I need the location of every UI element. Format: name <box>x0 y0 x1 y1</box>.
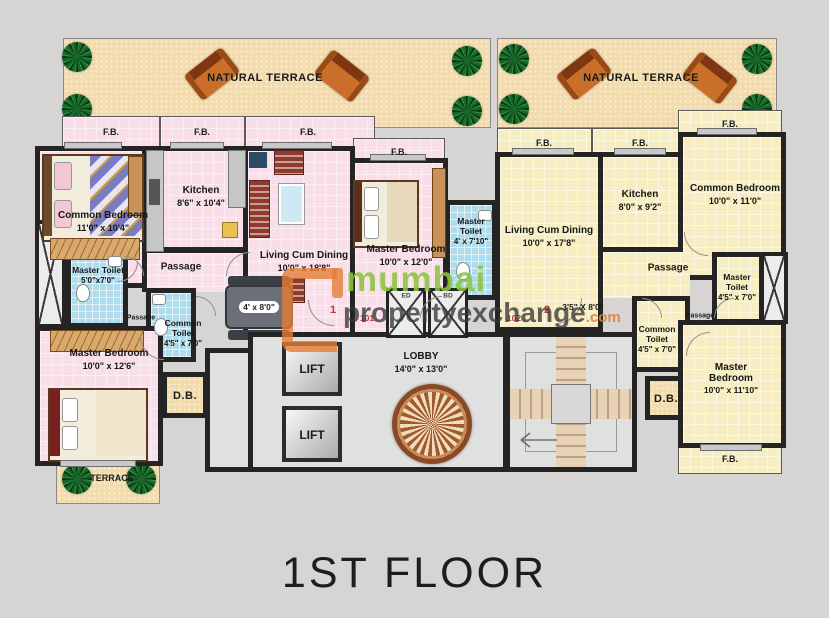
plant-icon <box>452 46 482 76</box>
window <box>614 148 666 155</box>
stair-landing <box>551 384 591 424</box>
coffee-table <box>279 184 304 224</box>
room-name: Master Bedroom <box>699 362 763 384</box>
db-101-label: D.B. <box>173 390 197 402</box>
label-living-101: Living Cum Dining 10'0" x 18'8" <box>260 250 348 274</box>
room-name: Common Toilet <box>630 324 684 344</box>
bed-pillow <box>62 426 78 450</box>
bed-pillow <box>54 162 72 190</box>
label-common-toilet-102: Common Toilet 4'5" x 7'0" <box>630 324 684 356</box>
window <box>170 142 224 149</box>
natural-terrace-left-label: NATURAL TERRACE <box>207 72 323 84</box>
room-dims: 10'0" x 17'8" <box>505 237 593 249</box>
flat-number-101: 101 <box>360 313 374 323</box>
room-dims: 4'5" x 7'0" <box>157 338 209 350</box>
label-master-bedroom-102: Master Bedroom 10'0" x 11'10" <box>699 362 763 396</box>
plant-icon <box>62 464 92 494</box>
room-name: Common Toilet <box>157 318 209 338</box>
door-arc-common-toilet-101 <box>196 296 216 316</box>
fb-label: F.B. <box>194 127 210 137</box>
room-dims: 14'0" x 13'0" <box>395 363 448 375</box>
bed-pillow <box>62 398 78 422</box>
passage-102-label: Passage <box>648 263 689 274</box>
passage-small-102-label: Passage <box>686 313 714 320</box>
duct-ed-label: ED <box>401 293 410 300</box>
tv-unit <box>249 152 267 168</box>
bed-headboard <box>50 390 60 456</box>
fb-label: F.B. <box>722 119 738 129</box>
label-master-bedroom-top-101: Master Bedroom 10'0" x 12'0" <box>367 244 446 268</box>
bed-pillow <box>364 215 379 239</box>
room-name: LOBBY <box>395 351 448 363</box>
room-name: Master Bedroom <box>70 348 149 360</box>
room-dims: 10'0" x 12'0" <box>367 256 446 268</box>
passage-dims-102: 3'5" X 8'0" <box>562 302 603 312</box>
terrace-label: TERRACE <box>90 473 134 483</box>
label-common-toilet-101: Common Toilet 4'5" x 7'0" <box>157 318 209 350</box>
window <box>512 148 574 155</box>
floorplan-canvas: 4' x 8'0" <box>0 0 829 618</box>
room-name: Kitchen <box>177 185 225 197</box>
plant-icon <box>499 94 529 124</box>
room-name: Common Bedroom <box>58 210 148 222</box>
passage-101-label: Passage <box>161 262 202 273</box>
armchair-living <box>274 150 304 175</box>
window <box>697 128 757 135</box>
bed-icon <box>48 388 148 462</box>
wardrobe-icon <box>128 156 143 216</box>
room-dims: 10'0" x 18'8" <box>260 262 348 274</box>
bed-pillow <box>364 187 379 211</box>
label-master-toilet-right-101: Master Toilet 4' x 7'10" <box>448 216 494 248</box>
duct-bd-label: BD <box>443 293 452 300</box>
room-dims: 8'0" x 9'2" <box>619 201 662 213</box>
room-name: Living Cum Dining <box>505 225 593 237</box>
room-dims: 4' x 7'10" <box>448 236 494 248</box>
kitchen-counter <box>228 150 246 208</box>
staircase <box>505 332 637 472</box>
window <box>64 142 122 149</box>
door-number-2: 2 <box>544 304 550 316</box>
label-master-bedroom-bottom-101: Master Bedroom 10'0" x 12'6" <box>70 348 149 372</box>
lobby-medallion <box>392 384 472 464</box>
room-dims: 10'0" x 11'10" <box>699 384 763 396</box>
kitchen-counter <box>146 150 164 252</box>
fb-label: F.B. <box>391 147 407 157</box>
bed-headboard <box>355 182 362 242</box>
door-number-1: 1 <box>330 304 336 316</box>
plant-icon <box>452 96 482 126</box>
stair-direction-arrow-icon <box>515 431 559 449</box>
dining-table: 4' x 8'0" <box>225 285 293 329</box>
label-master-toilet-left-101: Master Toilet 5'0"x7'0" <box>72 265 124 287</box>
lift-1-label: LIFT <box>299 362 324 376</box>
fb-label: F.B. <box>536 138 552 148</box>
plant-icon <box>742 44 772 74</box>
duct-shaft-right <box>760 252 788 324</box>
page-title: 1ST FLOOR <box>0 549 829 598</box>
natural-terrace-right-label: NATURAL TERRACE <box>583 72 699 84</box>
room-name: Master Toilet <box>72 265 124 275</box>
label-common-bedroom-101: Common Bedroom 11'0" x 10'4" <box>58 210 148 234</box>
dining-table-dims: 4' x 8'0" <box>239 301 279 313</box>
stove-icon <box>149 179 160 205</box>
lift-2-label: LIFT <box>299 428 324 442</box>
room-name: Master Toilet <box>448 216 494 236</box>
bed-icon <box>353 180 419 248</box>
label-lobby: LOBBY 14'0" x 13'0" <box>395 351 448 375</box>
room-dims: 4'5" x 7'0" <box>713 292 761 304</box>
passage-small-101-label: Passage <box>127 315 155 322</box>
room-dims: 5'0"x7'0" <box>72 275 124 287</box>
room-name: Master Bedroom <box>367 244 446 256</box>
label-common-bedroom-102: Common Bedroom 10'0" x 11'0" <box>690 183 780 207</box>
plant-icon <box>499 44 529 74</box>
room-name: Common Bedroom <box>690 183 780 195</box>
room-dims: 8'6" x 10'4" <box>177 197 225 209</box>
bed-headboard <box>44 156 52 236</box>
room-name: Master Toilet <box>713 272 761 292</box>
window <box>700 444 762 451</box>
room-dims: 11'0" x 10'4" <box>58 222 148 234</box>
passage-102 <box>603 252 690 298</box>
room-dims: 10'0" x 12'6" <box>70 360 149 372</box>
basin-icon <box>152 294 166 305</box>
window <box>60 460 136 467</box>
db-102-label: D.B. <box>654 393 678 405</box>
sofa-icon <box>249 180 270 238</box>
label-kitchen-101: Kitchen 8'6" x 10'4" <box>177 185 225 209</box>
fb-label: F.B. <box>103 127 119 137</box>
label-master-toilet-102: Master Toilet 4'5" x 7'0" <box>713 272 761 304</box>
kitchen-stool <box>222 222 238 238</box>
room-name: Living Cum Dining <box>260 250 348 262</box>
bed-blanket <box>96 390 146 456</box>
fb-label: F.B. <box>722 454 738 464</box>
window <box>262 142 332 149</box>
room-dims: 10'0" x 11'0" <box>690 195 780 207</box>
label-living-102: Living Cum Dining 10'0" x 17'8" <box>505 225 593 249</box>
room-name: Kitchen <box>619 189 662 201</box>
plant-icon <box>62 42 92 72</box>
room-dims: 4'5" x 7'0" <box>630 344 684 356</box>
bed-blanket <box>387 182 417 242</box>
flat-number-102: 102 <box>507 313 521 323</box>
fb-label: F.B. <box>300 127 316 137</box>
fb-label: F.B. <box>632 138 648 148</box>
wc-icon <box>456 262 470 280</box>
label-kitchen-102: Kitchen 8'0" x 9'2" <box>619 189 662 213</box>
